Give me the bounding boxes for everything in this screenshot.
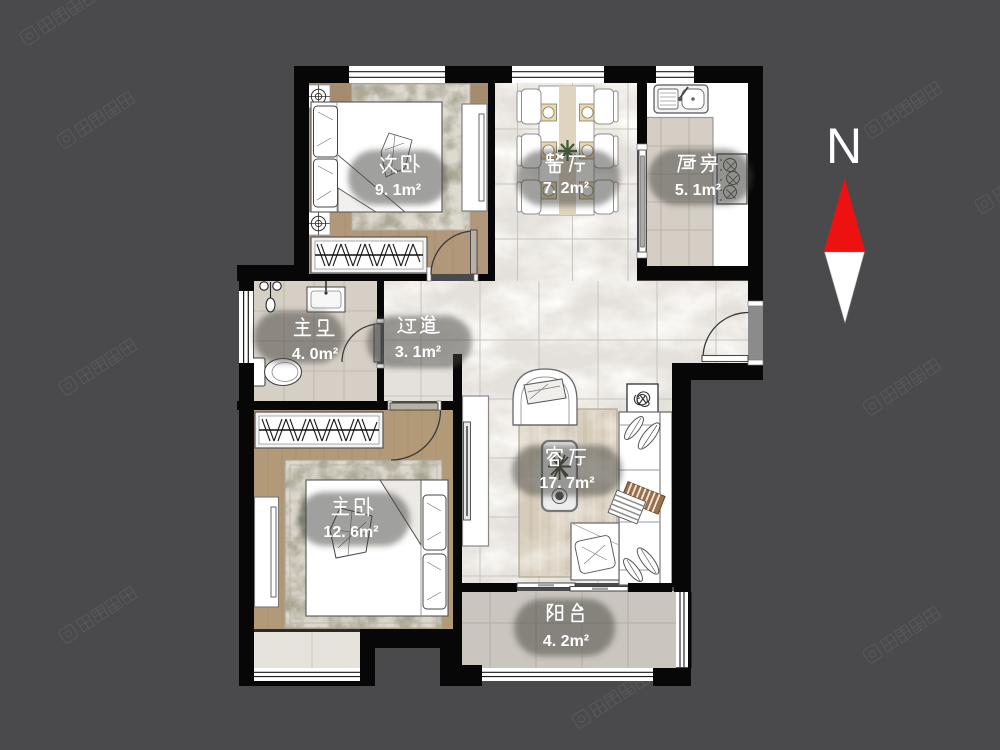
svg-text:7. 2m²: 7. 2m² — [543, 180, 589, 197]
svg-text:17. 7m²: 17. 7m² — [539, 475, 594, 492]
svg-text:4. 2m²: 4. 2m² — [543, 633, 589, 650]
svg-text:12. 6m²: 12. 6m² — [323, 524, 378, 541]
svg-text:3. 1m²: 3. 1m² — [395, 344, 441, 361]
svg-text:5. 1m²: 5. 1m² — [675, 182, 721, 199]
svg-text:9. 1m²: 9. 1m² — [375, 182, 421, 199]
svg-text:4. 0m²: 4. 0m² — [292, 346, 338, 363]
svg-text:N: N — [826, 118, 862, 174]
